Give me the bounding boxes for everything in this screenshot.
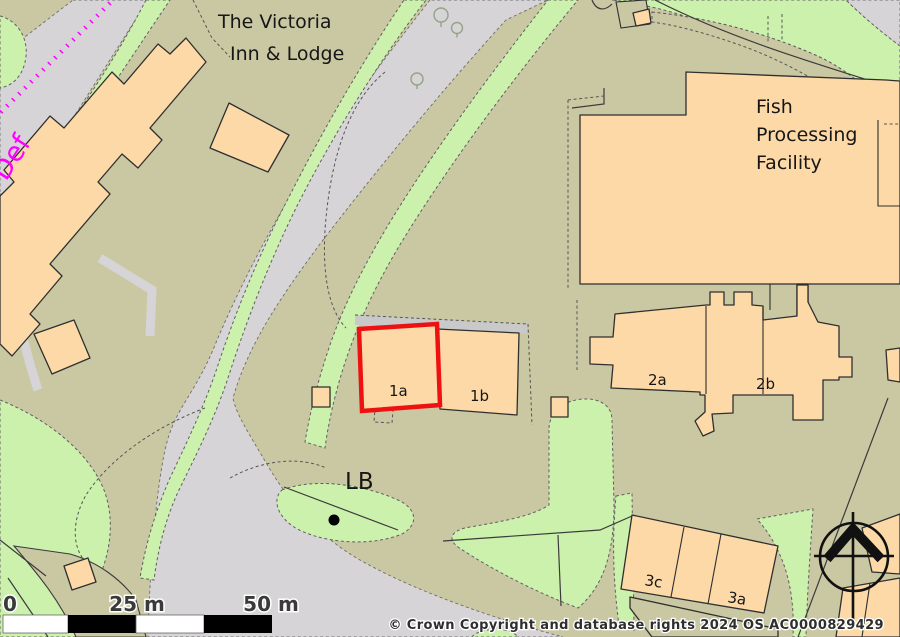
label-plot-1a: 1a bbox=[389, 382, 408, 400]
label-fish-line3: Facility bbox=[756, 152, 822, 174]
label-plot-1b: 1b bbox=[470, 387, 489, 405]
label-plot-2a: 2a bbox=[648, 371, 667, 389]
point-marker-icon bbox=[329, 515, 340, 526]
label-letter-box: LB bbox=[345, 469, 374, 495]
label-plot-3c: 3c bbox=[643, 571, 663, 592]
building-right-edge-small bbox=[886, 348, 900, 382]
label-fish-line2: Processing bbox=[756, 124, 857, 146]
scale-label-25: 25 m bbox=[109, 592, 165, 616]
label-victoria-line1: The Victoria bbox=[217, 11, 332, 33]
scale-label-0: 0 bbox=[3, 592, 17, 616]
building-small-left bbox=[312, 387, 330, 407]
scale-label-50: 50 m bbox=[243, 592, 299, 616]
label-plot-2b: 2b bbox=[756, 375, 775, 393]
building-small-right bbox=[551, 397, 568, 417]
map-canvas: Def The Victoria Inn & Lodge Fish Proces… bbox=[0, 0, 900, 637]
label-plot-3a: 3a bbox=[726, 588, 747, 609]
copyright-attribution: © Crown Copyright and database rights 20… bbox=[388, 618, 884, 633]
label-fish-line1: Fish bbox=[756, 96, 793, 118]
label-victoria-line2: Inn & Lodge bbox=[230, 43, 344, 65]
